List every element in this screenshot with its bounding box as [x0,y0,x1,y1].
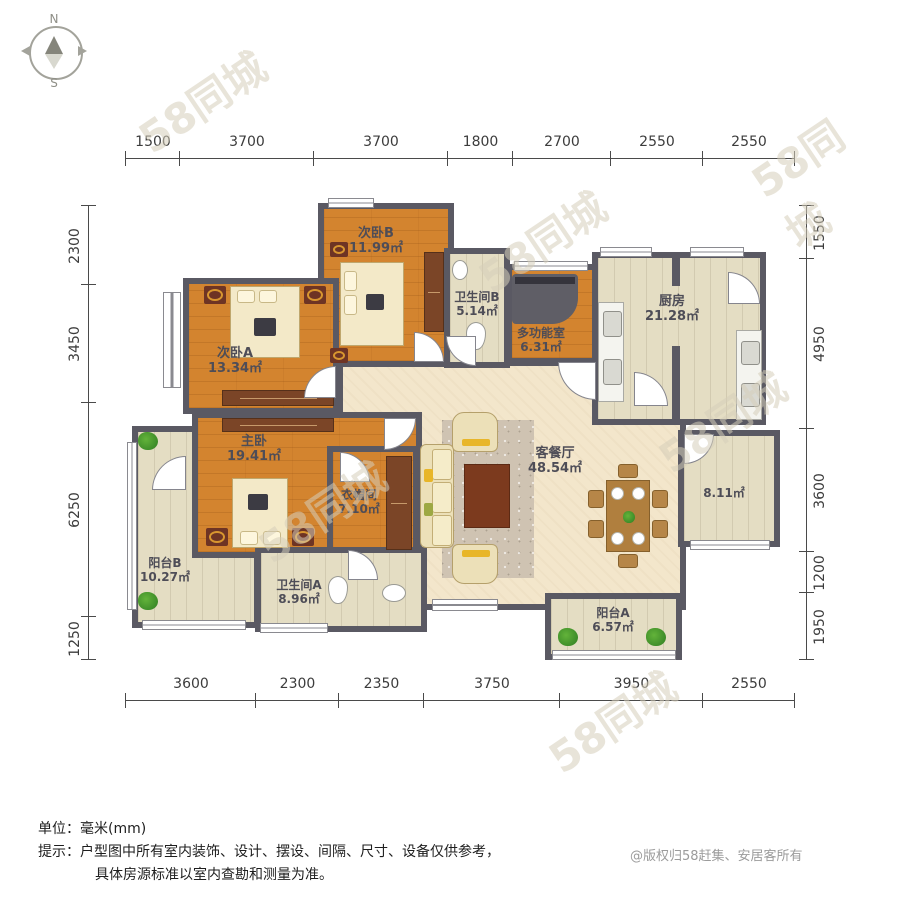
label-master: 主卧 19.41㎡ [222,434,286,464]
room-name: 卫生间A [262,578,336,592]
dim-label: 2300 [62,206,88,285]
window-bay [163,292,181,388]
dining-chair [652,490,668,508]
room-name: 多功能室 [504,326,578,340]
window [127,442,137,610]
dimension-left: 2300 3450 6250 1250 [62,206,89,660]
room-name: 卫生间B [440,290,514,304]
plate [611,532,624,545]
wardrobe [222,418,334,432]
wall-stub [672,252,680,286]
compass-west-arrow-icon [21,46,30,56]
copyright-text: @版权归58赶集、安居客所有 [630,845,803,864]
label-multifunction: 多功能室 6.31㎡ [504,326,578,354]
pillow [237,290,255,303]
dim-label: 2550 [611,134,703,158]
dimension-bottom: 3600 2300 2350 3750 3950 2550 [126,676,795,701]
watermark: 58同城 [535,655,687,785]
plant [138,592,158,610]
armchair-pillow [462,439,490,446]
window [514,261,588,271]
dim-label: 1550 [807,206,833,259]
bed [232,478,288,548]
sink [741,341,760,365]
bed-runner [248,494,268,510]
unit-note: 单位：毫米(mm) [38,818,500,841]
compass: N S [18,12,90,90]
window [432,599,498,611]
room-area: 6.31㎡ [504,340,578,354]
pillow [344,271,357,291]
room-name: 客餐厅 [516,446,594,461]
stove [741,383,760,407]
room-name: 衣帽间 [330,488,388,502]
room-name: 阳台A [578,606,648,620]
dim-label: 2550 [703,134,795,158]
compass-south-label: S [50,76,58,90]
armchair [452,412,498,452]
dim-label: 3700 [314,134,448,158]
room-area: 21.28㎡ [628,309,716,324]
tip-note-line1: 提示：户型图中所有室内装饰、设计、摆设、间隔、尺寸、设备仅供参考， [38,841,500,864]
room-area: 11.99㎡ [328,241,424,256]
nightstand [204,286,226,304]
dim-label: 2550 [703,676,795,700]
window [328,198,374,208]
kitchen-counter [736,330,762,420]
dim-label: 6250 [62,403,88,617]
sink [382,584,406,602]
dim-label: 1950 [807,593,833,660]
room-area: 48.54㎡ [516,461,594,476]
label-bedroom-b: 次卧B 11.99㎡ [328,226,424,256]
dim-label: 1200 [807,552,833,593]
tip-value: 户型图中所有室内装饰、设计、摆设、间隔、尺寸、设备仅供参考， [80,844,500,860]
window [552,650,676,660]
label-bathroom-a: 卫生间A 8.96㎡ [262,578,336,606]
label-bathroom-b: 卫生间B 5.14㎡ [440,290,514,318]
dim-label: 3450 [62,285,88,403]
dining-chair [652,520,668,538]
plate [632,532,645,545]
dim-label: 4950 [807,259,833,429]
tip-label: 提示： [38,844,80,860]
label-room-8-11: 8.11㎡ [694,486,754,500]
window [142,620,246,630]
room-name: 主卧 [222,434,286,449]
dim-label: 3600 [126,676,256,700]
window [260,623,328,633]
dim-label: 1500 [126,134,180,158]
nightstand [292,528,314,546]
footer-notes: 单位：毫米(mm) 提示：户型图中所有室内装饰、设计、摆设、间隔、尺寸、设备仅供… [38,818,500,887]
room-name: 阳台B [136,556,194,570]
bed-runner [254,318,276,336]
window [690,540,770,550]
nightstand [206,528,228,546]
armchair [452,544,498,584]
wall-stub [672,346,680,425]
nightstand [330,348,348,363]
table-plant [623,511,635,523]
dimension-top: 1500 3700 3700 1800 2700 2550 2550 [126,134,795,159]
label-bedroom-a: 次卧A 13.34㎡ [180,346,290,376]
room-name: 次卧B [328,226,424,241]
room-name: 厨房 [628,294,716,309]
dim-label: 3750 [424,676,560,700]
sofa [420,444,454,548]
label-balcony-a: 阳台A 6.57㎡ [578,606,648,634]
label-living: 客餐厅 48.54㎡ [516,446,594,476]
wardrobe [386,456,412,550]
pillow [259,290,277,303]
dimension-right: 1550 4950 3600 1200 1950 [806,206,833,660]
window [690,247,744,257]
dim-label: 2300 [256,676,339,700]
dining-table [606,480,650,552]
floorplan-canvas: N S 1500 3700 3700 1800 2700 2550 2550 3… [0,0,900,900]
label-closet: 衣帽间 7.10㎡ [330,488,388,516]
room-area: 8.96㎡ [262,592,336,606]
sink [603,359,622,385]
unit-value: 毫米(mm) [80,821,146,837]
dim-label: 2350 [339,676,424,700]
kitchen-counter [598,302,624,402]
plate [611,487,624,500]
room-area: 6.57㎡ [578,620,648,634]
compass-needle-north-icon [45,36,63,54]
armchair-pillow [462,550,490,557]
dim-label: 3600 [807,429,833,552]
dim-label: 3700 [180,134,314,158]
sofa-cushion [432,482,452,513]
pillow [263,531,281,545]
dining-chair [588,490,604,508]
room-area: 10.27㎡ [136,570,194,584]
compass-north-label: N [50,12,59,26]
room-name: 次卧A [180,346,290,361]
room-area: 19.41㎡ [222,449,286,464]
bed-runner [366,294,384,310]
sofa-cushion [432,449,452,480]
dining-chair [618,464,638,478]
label-kitchen: 厨房 21.28㎡ [628,294,716,324]
plant [138,432,158,450]
dim-label: 2700 [513,134,611,158]
room-area: 8.11㎡ [694,486,754,500]
sofa-cushion [432,515,452,546]
compass-east-arrow-icon [78,46,87,56]
dim-label: 3950 [560,676,703,700]
plate [632,487,645,500]
label-balcony-b: 阳台B 10.27㎡ [136,556,194,584]
room-area: 7.10㎡ [330,502,388,516]
piano [512,274,578,324]
tip-note-line2: 具体房源标准以室内查勘和测量为准。 [38,864,500,887]
sofa-pillow [424,469,433,482]
sink [603,311,622,337]
dim-label: 1800 [448,134,513,158]
room-area: 13.34㎡ [180,361,290,376]
room-area: 5.14㎡ [440,304,514,318]
compass-needle-south-icon [45,54,63,69]
unit-label: 单位： [38,821,80,837]
plant [558,628,578,646]
dining-chair [618,554,638,568]
pillow [344,295,357,315]
pillow [240,531,258,545]
nightstand [304,286,326,304]
sink [452,260,468,280]
coffee-table [464,464,510,528]
dim-label: 1250 [62,617,88,660]
dining-chair [588,520,604,538]
plant [646,628,666,646]
window [600,247,652,257]
sofa-pillow [424,503,433,516]
